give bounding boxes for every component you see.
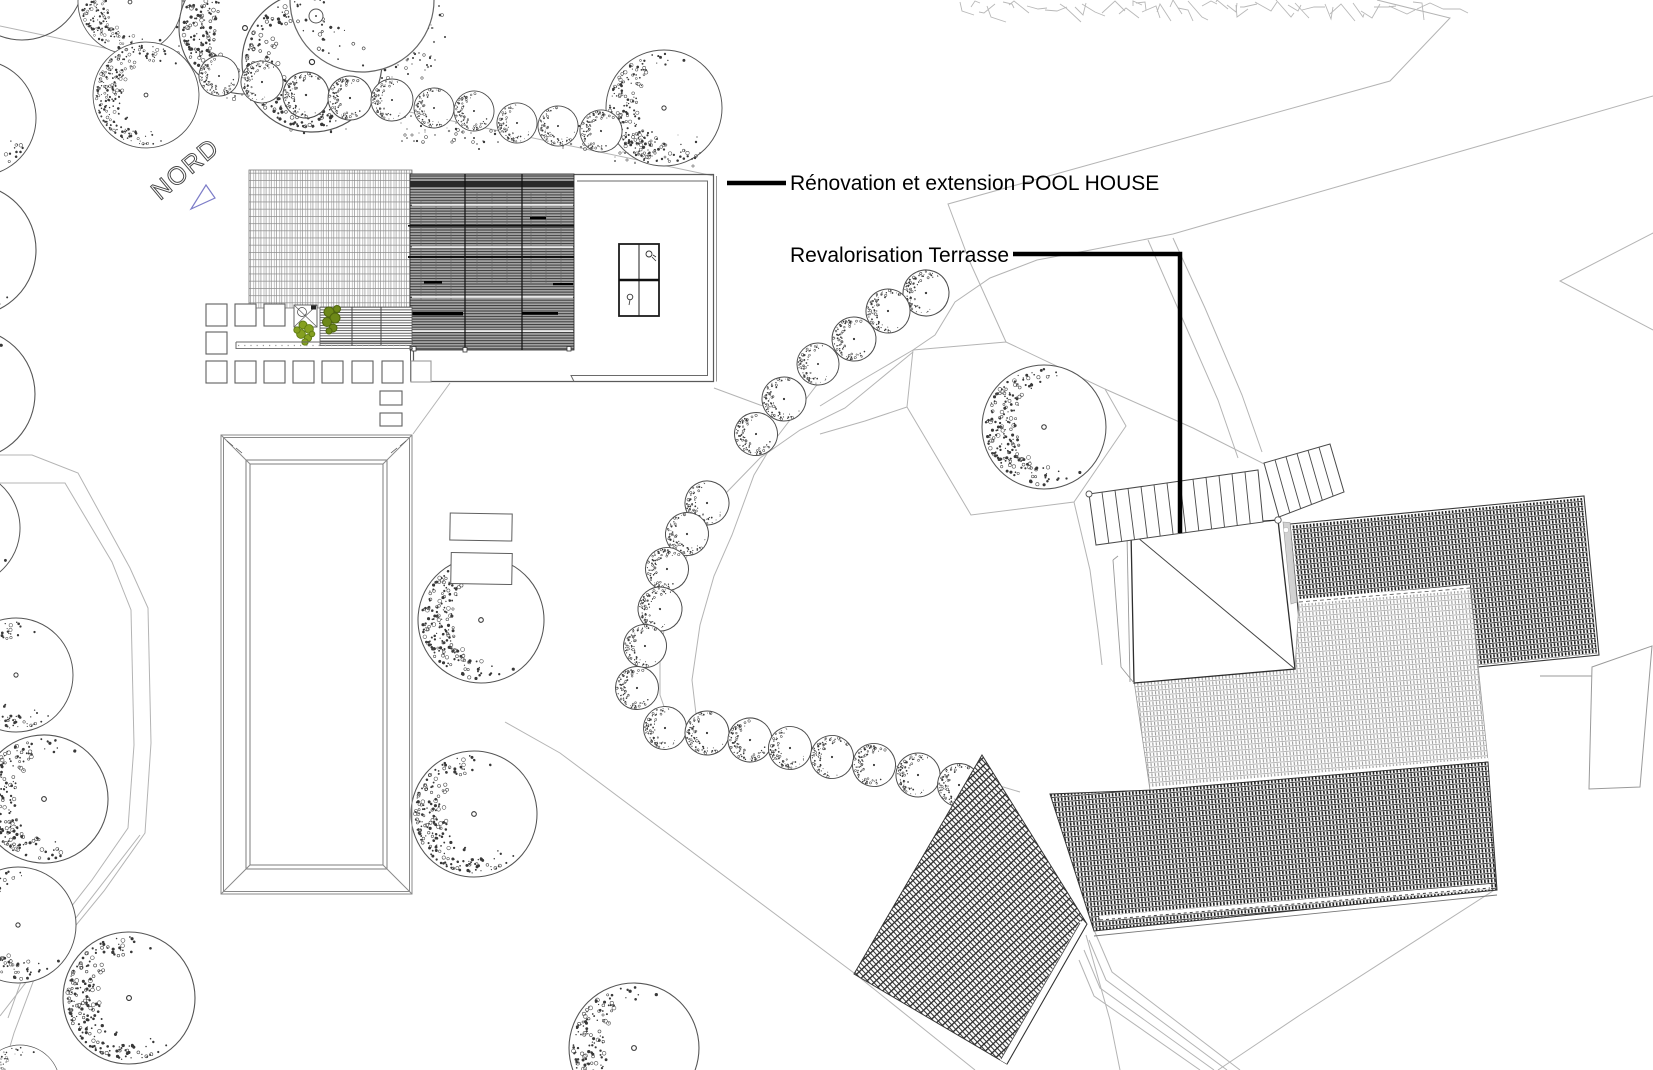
svg-text:Rénovation et extension POOL H: Rénovation et extension POOL HOUSE: [790, 172, 1159, 195]
svg-text:Revalorisation Terrasse: Revalorisation Terrasse: [790, 244, 1009, 267]
